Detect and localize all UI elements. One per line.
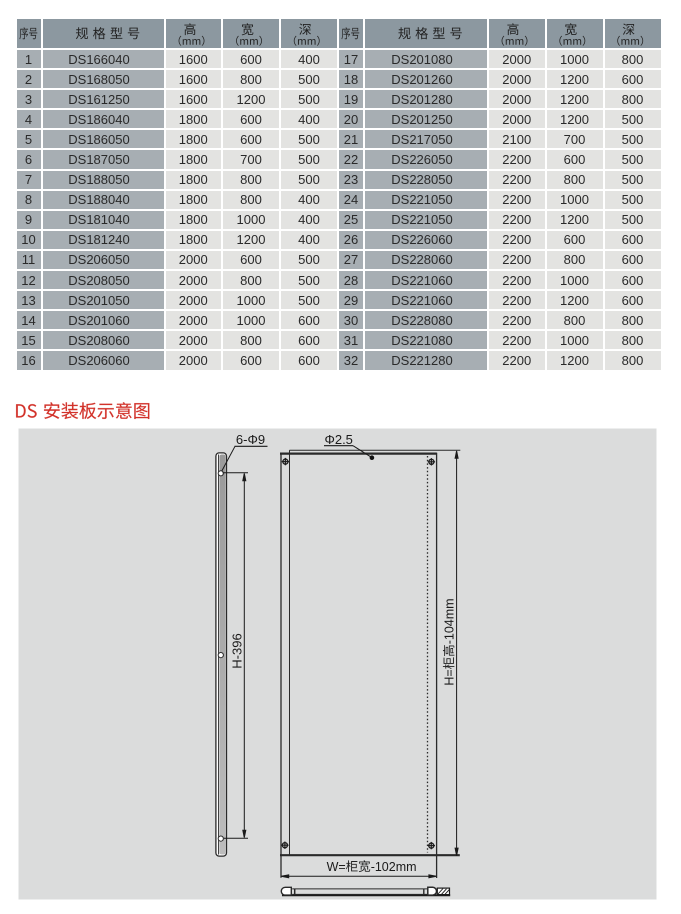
svg-text:-102mm: -102mm — [371, 860, 417, 874]
svg-text:W=: W= — [327, 860, 346, 874]
svg-text:6-Φ9: 6-Φ9 — [236, 432, 265, 447]
svg-text:-104mm: -104mm — [442, 598, 456, 644]
svg-text:H-396: H-396 — [230, 633, 245, 668]
svg-text:Φ2.5: Φ2.5 — [324, 432, 352, 447]
svg-text:H=: H= — [442, 669, 456, 685]
